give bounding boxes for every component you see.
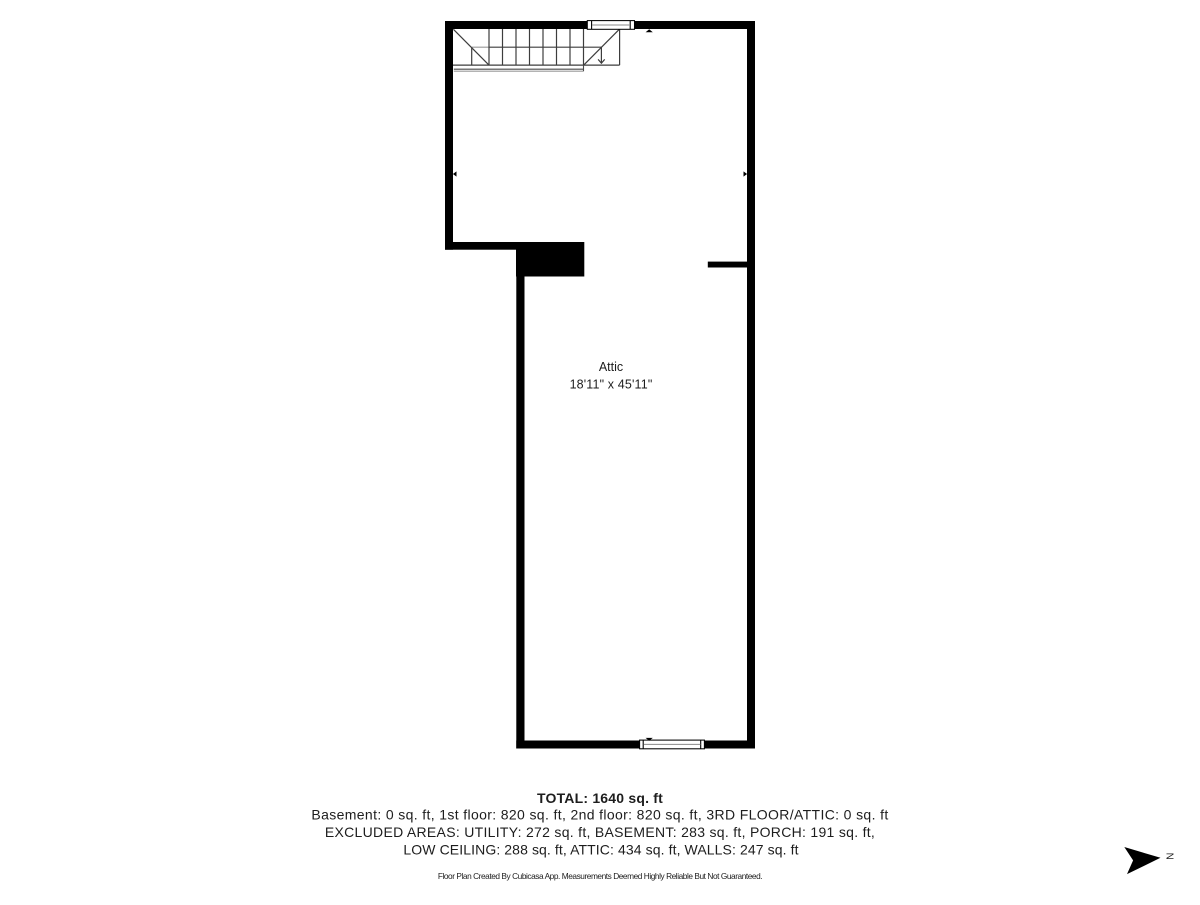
svg-text:N: N	[1163, 853, 1174, 860]
svg-text:Basement: 0 sq. ft, 1st floor:: Basement: 0 sq. ft, 1st floor: 820 sq. f…	[311, 807, 888, 823]
svg-text:EXCLUDED AREAS: UTILITY: 272 s: EXCLUDED AREAS: UTILITY: 272 sq. ft, BAS…	[325, 824, 875, 840]
svg-text:18'11" x 45'11": 18'11" x 45'11"	[570, 377, 653, 391]
svg-text:TOTAL: 1640 sq. ft: TOTAL: 1640 sq. ft	[537, 790, 663, 806]
svg-text:LOW CEILING: 288 sq. ft, ATTIC: LOW CEILING: 288 sq. ft, ATTIC: 434 sq. …	[403, 842, 798, 858]
svg-text:Attic: Attic	[599, 360, 623, 374]
svg-text:Floor Plan Created By Cubicasa: Floor Plan Created By Cubicasa App. Meas…	[438, 871, 762, 881]
